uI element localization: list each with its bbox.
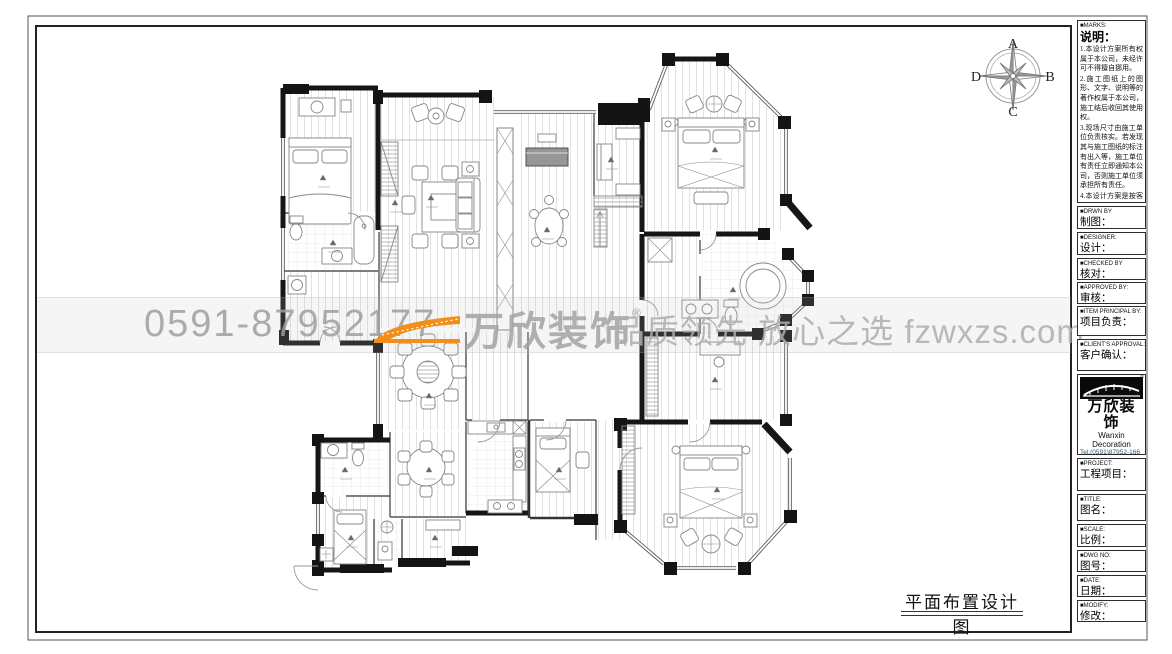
washer — [288, 276, 306, 294]
modify-box: ■MODIFY: 修改： — [1077, 600, 1146, 622]
designer-label-en: ■DESIGNER: — [1080, 234, 1143, 242]
compass-n: A — [1008, 37, 1019, 52]
modify-label-cn: 修改： — [1080, 610, 1143, 622]
marks-note-4: 4.本设计方案是按客户要求设计，经客户签字即视为同意认可，不得随意更改。 — [1080, 192, 1143, 203]
drawn-by-box: ■DRWN BY 制图： — [1077, 206, 1146, 229]
project-label-cn: 工程项目： — [1080, 468, 1143, 482]
toilet-topleft — [290, 216, 303, 240]
marks-note-2: 2.施工图纸上的图形、文字、说明等的著作权属于本公司，施工结后收回其使用权。 — [1080, 75, 1143, 123]
company-tel1: Tel:(0591)87952-166 — [1080, 449, 1143, 455]
modify-label-en: ■MODIFY: — [1080, 602, 1143, 610]
title-block: ■MARKS: 说明： 1.本设计方案所有权属于本公司，未经许可不得擅自挪用。 … — [1077, 18, 1148, 630]
date-label-en: ■DATE: — [1080, 577, 1143, 585]
marks-label-cn: 说明： — [1080, 30, 1143, 44]
bed-topleft — [289, 138, 351, 224]
compass-s: C — [1008, 105, 1017, 120]
project-label-en: ■PROJECT: — [1080, 460, 1143, 468]
dwg-no-box: ■DWG NO: 图号： — [1077, 550, 1146, 572]
date-label-cn: 日期： — [1080, 585, 1143, 597]
watermark-slogan: 品质领先 放心之选 fzwxzs.com — [612, 305, 1085, 353]
title-label-en: ■TITLE: — [1080, 496, 1143, 504]
sink-topleft — [322, 248, 352, 264]
marks-label-en: ■MARKS: — [1080, 22, 1143, 30]
dwg-no-label-en: ■DWG NO: — [1080, 552, 1143, 560]
drawn-by-label-cn: 制图： — [1080, 216, 1143, 229]
utility-cabinet — [426, 520, 460, 530]
client-approval-label-en: ■CLIENT'S APPROVAL: — [1080, 341, 1143, 349]
company-registered-mark: ® — [1140, 374, 1144, 380]
checked-by-label-cn: 核对： — [1080, 268, 1143, 280]
company-name-en: Wanxin Decoration — [1080, 431, 1143, 449]
principal-label-cn: 项目负责： — [1080, 316, 1143, 330]
project-box: ■PROJECT: 工程项目： — [1077, 458, 1146, 491]
compass: A C D B — [971, 37, 1055, 120]
marks-note-1: 1.本设计方案所有权属于本公司，未经许可不得擅自挪用。 — [1080, 45, 1143, 74]
title-label-cn: 图名： — [1080, 504, 1143, 518]
drawing-title-underline — [901, 611, 1023, 616]
title-box: ■TITLE: 图名： — [1077, 494, 1146, 521]
scale-box: ■SCALE: 比例： — [1077, 524, 1146, 547]
marks-note-3: 3.现场尺寸由施工单位负责核实。若发现其与施工图纸的标注有出入等，施工单位有责任… — [1080, 124, 1143, 191]
watermark-brand-text: 万欣装饰 — [464, 310, 632, 354]
dwg-no-label-cn: 图号： — [1080, 560, 1143, 572]
marks-box: ■MARKS: 说明： 1.本设计方案所有权属于本公司，未经许可不得擅自挪用。 … — [1077, 20, 1146, 203]
designer-box: ■DESIGNER: 设计： — [1077, 232, 1146, 255]
scale-label-en: ■SCALE: — [1080, 526, 1143, 534]
scale-label-cn: 比例： — [1080, 534, 1143, 547]
compass-e: B — [1045, 70, 1054, 85]
date-box: ■DATE: 日期： — [1077, 575, 1146, 597]
checked-by-label-en: ■CHECKED BY — [1080, 260, 1143, 268]
company-box: ® 万欣装饰 Wanxin Decoration Tel:(0591)87952… — [1077, 374, 1146, 455]
sofa-living — [456, 178, 480, 232]
principal-box: ■ITEM PRINCIPAL BY: 项目负责： — [1077, 306, 1146, 336]
designer-label-cn: 设计： — [1080, 242, 1143, 255]
approved-by-label-en: ■APPROVED BY: — [1080, 284, 1143, 292]
drawing-sheet: A C D B 0591-87952177 万欣装饰® 品质领先 放心之选 fz… — [0, 0, 1172, 654]
checked-by-box: ■CHECKED BY 核对： — [1077, 258, 1146, 280]
client-approval-label-cn: 客户确认： — [1080, 349, 1143, 363]
shower — [648, 238, 672, 262]
drawn-by-label-en: ■DRWN BY — [1080, 208, 1143, 216]
client-approval-box: ■CLIENT'S APPROVAL: 客户确认： — [1077, 339, 1146, 371]
watermark-logo-icon — [372, 311, 462, 345]
approved-by-box: ■APPROVED BY: 审核： — [1077, 282, 1146, 304]
principal-label-en: ■ITEM PRINCIPAL BY: — [1080, 308, 1143, 316]
company-logo: ® — [1080, 377, 1143, 399]
approved-by-label-cn: 审核： — [1080, 292, 1143, 304]
compass-w: D — [971, 70, 981, 85]
company-brand: 万欣装饰 — [1080, 399, 1143, 431]
